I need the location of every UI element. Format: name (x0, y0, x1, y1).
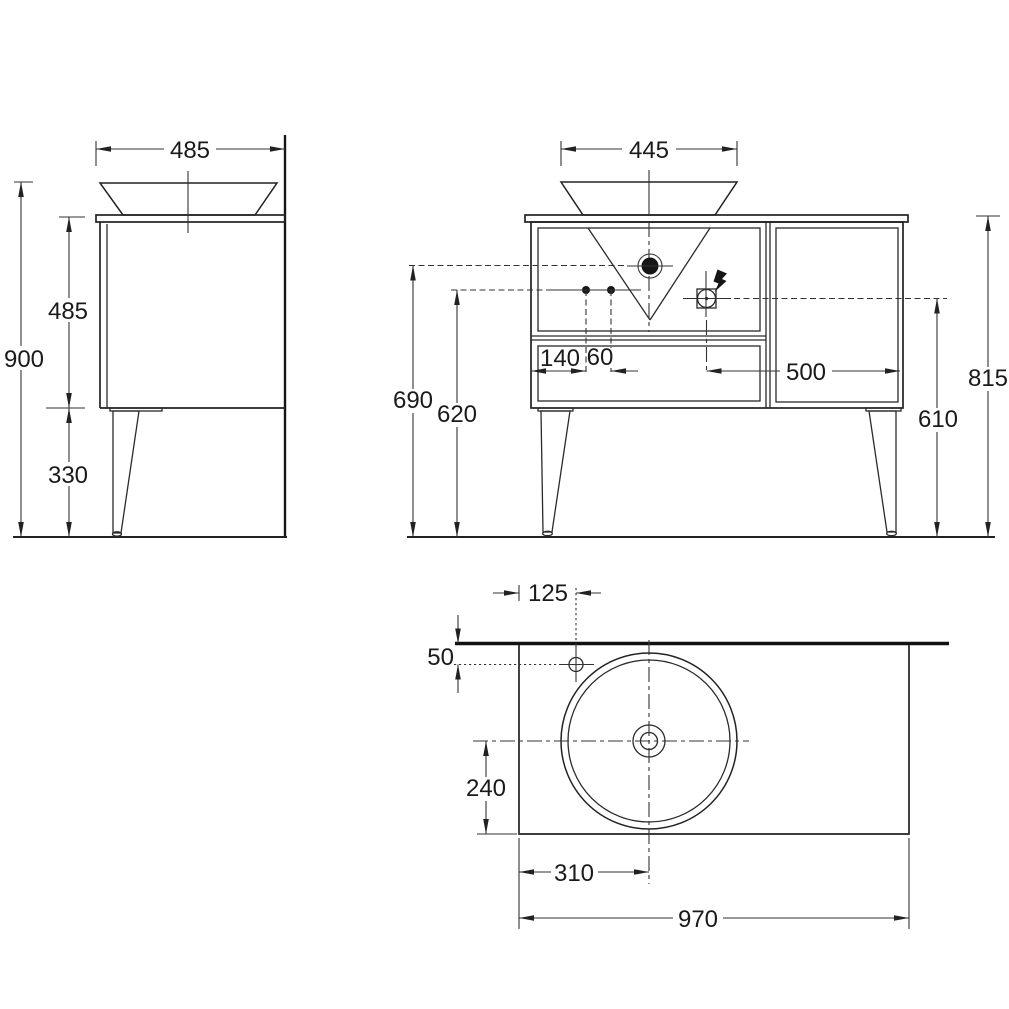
side-view: 485 900 485 330 (2, 135, 287, 537)
dim-front-basin-diameter: 445 (561, 137, 737, 166)
dim-label-basin-center-from-left: 310 (554, 860, 594, 887)
vanity-technical-drawing: 485 900 485 330 (0, 0, 1009, 1009)
cabinet-body (531, 222, 903, 408)
dim-front-worktop-height: 815 (966, 216, 1009, 537)
dim-label-tap-from-wall: 50 (427, 644, 454, 671)
dim-label-drain-height: 690 (393, 387, 433, 414)
dim-label-holes-height: 620 (437, 401, 477, 428)
dim-side-leg-height: 330 (46, 408, 91, 537)
dim-label-side-top-depth: 485 (170, 137, 210, 164)
dim-plan-basin-center-from-left: 310 (519, 838, 649, 929)
dim-label-hole-spacing: 60 (587, 344, 614, 371)
dim-front-outlet-offset: 500 (707, 359, 901, 386)
dim-label-outlet-height: 610 (918, 406, 958, 433)
dim-front-drain-height: 690 (391, 266, 436, 538)
dim-label-basin-center-from-front: 240 (466, 775, 506, 802)
dim-plan-basin-center-from-front: 240 (464, 741, 517, 834)
leg-side (113, 411, 139, 533)
plan-view: 125 50 240 310 (427, 580, 949, 933)
front-view: 445 140 60 500 690 (391, 137, 1009, 537)
dim-side-top-depth: 485 (96, 137, 285, 166)
countertop-front (525, 215, 908, 222)
dim-side-overall-height: 900 (2, 182, 47, 537)
dim-label-side-overall-height: 900 (4, 346, 44, 373)
technical-drawing-page: 485 900 485 330 (0, 0, 1009, 1009)
dim-label-outlet-offset: 500 (786, 359, 826, 386)
dim-plan-tap-from-wall: 50 (427, 615, 461, 693)
dim-label-side-cabinet-height: 485 (48, 298, 88, 325)
countertop-side (96, 215, 285, 222)
dim-front-holes-height: 620 (435, 290, 480, 537)
dim-label-hole-offset: 140 (540, 345, 580, 372)
leg-front-left (541, 411, 570, 532)
dim-front-hole-offset: 140 (531, 345, 586, 374)
dim-side-cabinet-height: 485 (46, 217, 91, 408)
countertop-plan-outline (519, 645, 909, 834)
dim-front-outlet-height: 610 (914, 299, 962, 538)
dim-label-side-leg-height: 330 (48, 462, 88, 489)
dim-plan-tap-from-left: 125 (493, 580, 601, 607)
power-outlet-icon (683, 270, 731, 318)
leg-front-right (869, 411, 896, 532)
dim-label-worktop-height: 815 (968, 365, 1008, 392)
dim-label-tap-from-left: 125 (528, 580, 568, 607)
dim-label-overall-width: 970 (678, 906, 718, 933)
dim-front-hole-spacing: 60 (587, 344, 638, 374)
dim-label-basin-diameter: 445 (629, 137, 669, 164)
